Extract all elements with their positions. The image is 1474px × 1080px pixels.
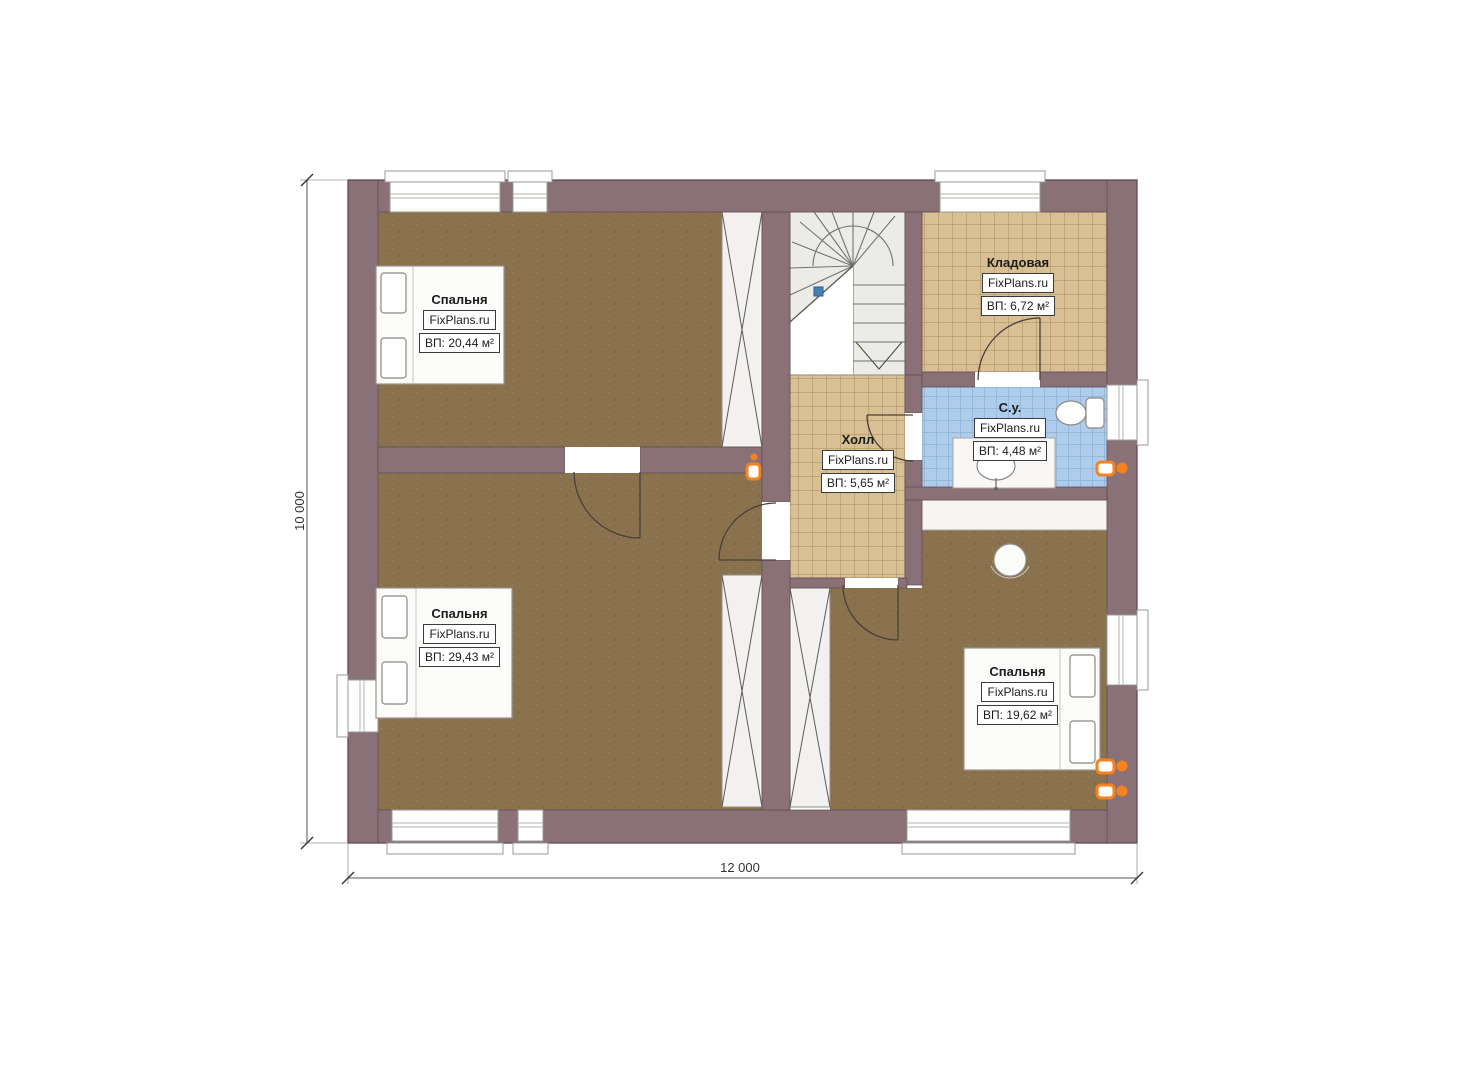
window-symbol (1107, 610, 1148, 690)
vent-shaft-icon (790, 588, 830, 807)
wall-interior (790, 578, 845, 588)
room-brand: FixPlans.ru (822, 450, 894, 470)
wall-interior (905, 212, 922, 375)
window-symbol (337, 675, 378, 737)
wall-interior (922, 372, 975, 387)
room-label-storeroom: Кладовая FixPlans.ru ВП: 6,72 м² (958, 255, 1078, 316)
room-label-bedroom-right: Спальня FixPlans.ru ВП: 19,62 м² (960, 664, 1075, 725)
wall-interior (905, 487, 1107, 500)
wall-interior (1040, 372, 1107, 387)
wall-interior (905, 375, 922, 413)
window-symbol (935, 171, 1045, 212)
room-brand: FixPlans.ru (981, 682, 1053, 702)
radiator-icon (1097, 785, 1128, 798)
room-area: ВП: 6,72 м² (981, 296, 1055, 316)
room-label-bedroom-top-left: Спальня FixPlans.ru ВП: 20,44 м² (402, 292, 517, 353)
room-area: ВП: 4,48 м² (973, 441, 1047, 461)
wall-exterior-left (348, 180, 378, 843)
wall-interior (898, 578, 907, 588)
room-name: Кладовая (987, 255, 1049, 270)
room-brand: FixPlans.ru (423, 624, 495, 644)
room-name: С.у. (999, 400, 1022, 415)
radiator-icon (1097, 462, 1128, 475)
room-name: Спальня (431, 606, 487, 621)
room-label-hall: Холл FixPlans.ru ВП: 5,65 м² (808, 432, 908, 493)
staircase (790, 212, 905, 375)
window-symbol (513, 810, 548, 854)
wall-interior (378, 447, 565, 473)
closet-band (922, 500, 1107, 530)
window-symbol (508, 171, 552, 212)
room-label-bedroom-bottom-left: Спальня FixPlans.ru ВП: 29,43 м² (402, 606, 517, 667)
wall-exterior-right (1107, 180, 1137, 843)
room-name: Спальня (431, 292, 487, 307)
dimension-height-label: 10 000 (292, 481, 308, 541)
room-area: ВП: 19,62 м² (977, 705, 1058, 725)
floor-plan-page: Спальня FixPlans.ru ВП: 20,44 м² Спальня… (0, 0, 1474, 1080)
room-brand: FixPlans.ru (423, 310, 495, 330)
window-symbol (387, 810, 503, 854)
room-area: ВП: 20,44 м² (419, 333, 500, 353)
dimension-width-label: 12 000 (695, 860, 785, 876)
stair-marker (814, 287, 823, 296)
floor-plan-drawing (0, 0, 1474, 1080)
room-area: ВП: 29,43 м² (419, 647, 500, 667)
wall-interior (762, 560, 790, 810)
room-name: Спальня (989, 664, 1045, 679)
room-brand: FixPlans.ru (982, 273, 1054, 293)
radiator-icon (1097, 760, 1128, 773)
room-brand: FixPlans.ru (974, 418, 1046, 438)
window-symbol (1107, 380, 1148, 445)
room-label-bathroom: С.у. FixPlans.ru ВП: 4,48 м² (960, 400, 1060, 461)
vent-shaft-icon (722, 212, 762, 447)
wall-interior (762, 212, 790, 502)
window-symbol (385, 171, 505, 212)
window-symbol (902, 810, 1075, 854)
vent-shaft-icon (722, 575, 762, 807)
room-name: Холл (842, 432, 875, 447)
room-area: ВП: 5,65 м² (821, 473, 895, 493)
wall-interior (640, 447, 762, 473)
